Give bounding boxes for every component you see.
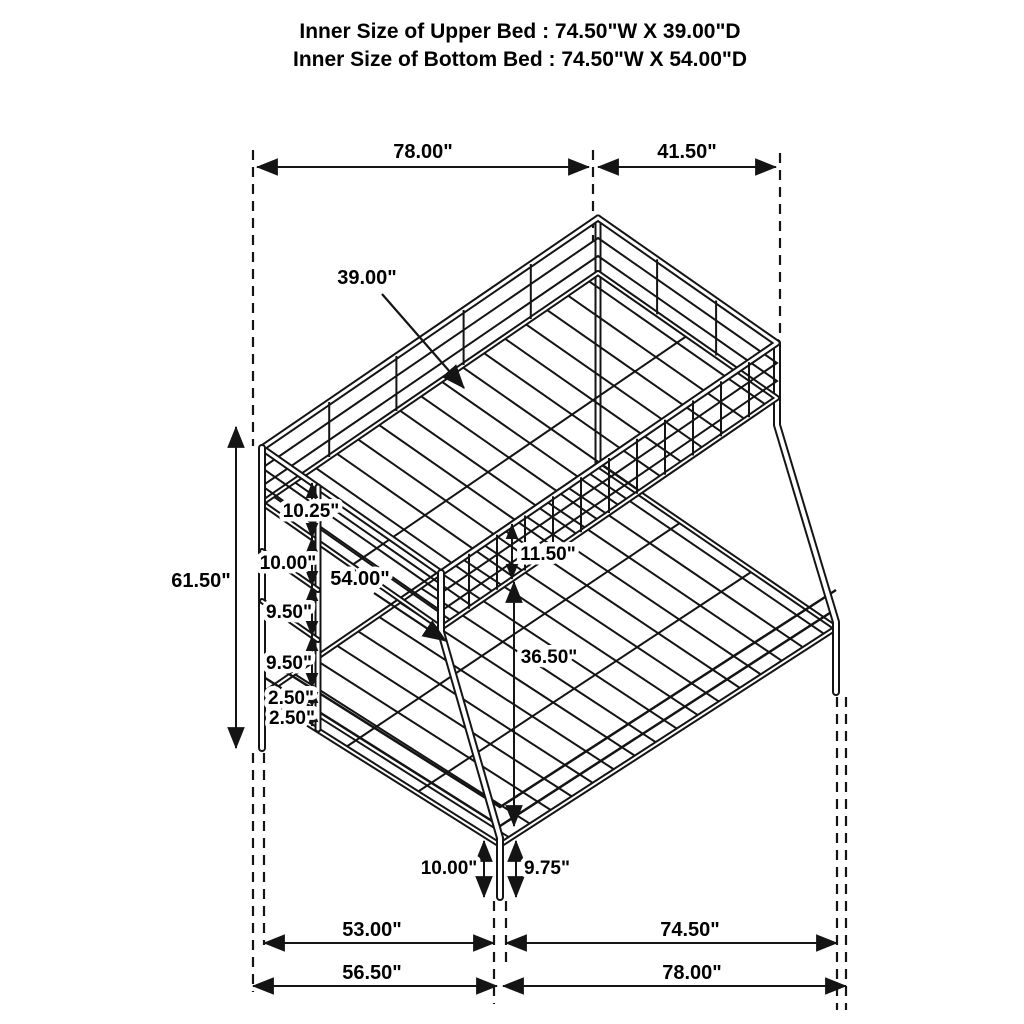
dim-label-overall-height: 61.50" [171, 570, 231, 592]
dim-label-floor-right-outer: 78.00" [662, 962, 722, 984]
title-upper-bed-inner-size: Inner Size of Upper Bed : 74.50"W X 39.0… [299, 20, 740, 43]
dim-label-rail-gap-1: 2.50" [268, 688, 314, 709]
dim-floor-right-inner: 74.50" [506, 919, 837, 943]
dim-upper-bed-depth: 39.00" [337, 267, 464, 388]
dim-label-rung-spacing-1: 10.25" [283, 501, 340, 522]
right-leg [777, 343, 836, 692]
dim-floor-right-outer: 78.00" [503, 962, 846, 986]
dim-top-length: 78.00" [257, 141, 589, 167]
leader-line [374, 593, 446, 641]
dim-label-floor-left-outer: 56.50" [342, 962, 402, 984]
dim-label-under-clearance: 36.50" [521, 647, 578, 668]
dim-label-rail-gap-2: 2.50" [269, 708, 315, 729]
diagram-page: Inner Size of Upper Bed : 74.50"W X 39.0… [0, 0, 1024, 1024]
leader-line [382, 294, 464, 388]
dim-label-lower-bed-depth: 54.00" [330, 568, 390, 590]
title-bottom-bed-inner-size: Inner Size of Bottom Bed : 74.50"W X 54.… [293, 48, 747, 71]
dim-label-front-leg-left: 10.00" [421, 858, 478, 879]
lower-deck-support [417, 571, 753, 793]
dim-label-rung-spacing-3: 9.50" [266, 602, 312, 623]
dim-label-top-length: 78.00" [393, 141, 453, 163]
dim-label-rung-spacing-2: 10.00" [260, 553, 317, 574]
dim-label-guardrail-height: 11.50" [520, 544, 576, 565]
dim-floor-left-outer: 56.50" [253, 962, 497, 986]
dim-label-floor-left-inner: 53.00" [342, 919, 402, 941]
lower-side-rail [262, 590, 836, 807]
dim-ladder-chain: 10.25" 10.00" 9.50" 9.50" 2.50" 2.50" [260, 483, 340, 729]
title-block: Inner Size of Upper Bed : 74.50"W X 39.0… [293, 20, 747, 71]
dim-overall-height: 61.50" [171, 427, 236, 748]
dim-floor-left-inner: 53.00" [264, 919, 494, 943]
dim-under-clearance: 36.50" [514, 582, 577, 826]
lower-deck-slat [294, 673, 532, 824]
dim-front-leg-left: 10.00" [421, 841, 484, 897]
dim-label-upper-bed-depth: 39.00" [337, 267, 397, 289]
dim-label-floor-right-inner: 74.50" [660, 919, 720, 941]
dim-label-rung-spacing-4: 9.50" [266, 653, 312, 674]
dim-top-depth: 41.50" [598, 141, 776, 167]
dim-label-top-depth: 41.50" [657, 141, 717, 163]
dim-front-leg-right: 9.75" [516, 841, 570, 897]
bunk-bed-dimension-diagram: Inner Size of Upper Bed : 74.50"W X 39.0… [0, 0, 1024, 1024]
dim-label-front-leg-right: 9.75" [524, 858, 570, 879]
lower-deck-slat [315, 659, 553, 811]
lower-side-rail [262, 609, 836, 826]
